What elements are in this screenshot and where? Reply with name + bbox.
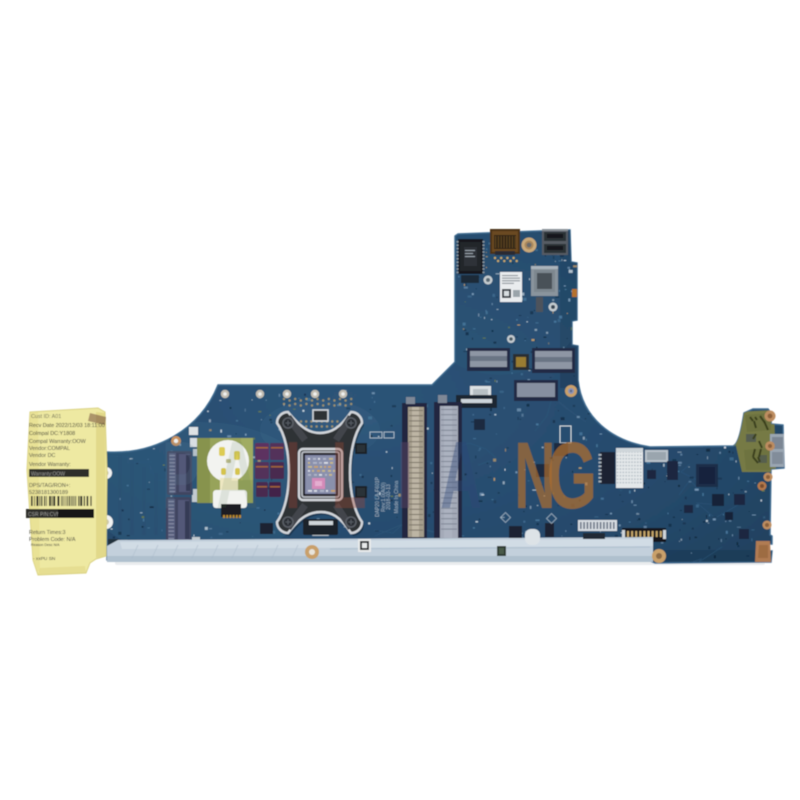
- svg-text:Cust ID: A01: Cust ID: A01: [31, 414, 61, 420]
- svg-text:5238181300189: 5238181300189: [29, 490, 68, 496]
- svg-text:Compal Warranty:OOW: Compal Warranty:OOW: [29, 439, 87, 445]
- svg-text:I: I: [397, 421, 413, 529]
- svg-text:Recv Date 2022/12/03 18:11:00: Recv Date 2022/12/03 18:11:00: [29, 423, 105, 429]
- svg-text:Vendor Warranty:: Vendor Warranty:: [29, 462, 71, 468]
- svg-text:P: P: [162, 421, 200, 529]
- svg-text:I: I: [285, 421, 301, 529]
- svg-text:Vendor:COMPAL: Vendor:COMPAL: [29, 446, 70, 452]
- svg-text:G: G: [547, 423, 597, 529]
- svg-text:Vendor DC: Vendor DC: [29, 453, 55, 459]
- svg-text:Return Times:3: Return Times:3: [29, 530, 66, 536]
- svg-text:L: L: [331, 421, 366, 529]
- svg-text:DPS/TAG/RON+:: DPS/TAG/RON+:: [29, 483, 70, 489]
- svg-text:- xxPU SN: - xxPU SN: [33, 556, 56, 562]
- svg-text:2018-03-13: 2018-03-13: [386, 484, 392, 510]
- svg-text:A: A: [216, 421, 258, 529]
- svg-text:Warranty:OOW: Warranty:OOW: [31, 472, 65, 478]
- svg-text:Colmpal DC:Y1808: Colmpal DC:Y1808: [29, 431, 75, 437]
- svg-text:Reason Desc N/A: Reason Desc N/A: [31, 543, 60, 547]
- svg-text:A: A: [440, 421, 482, 529]
